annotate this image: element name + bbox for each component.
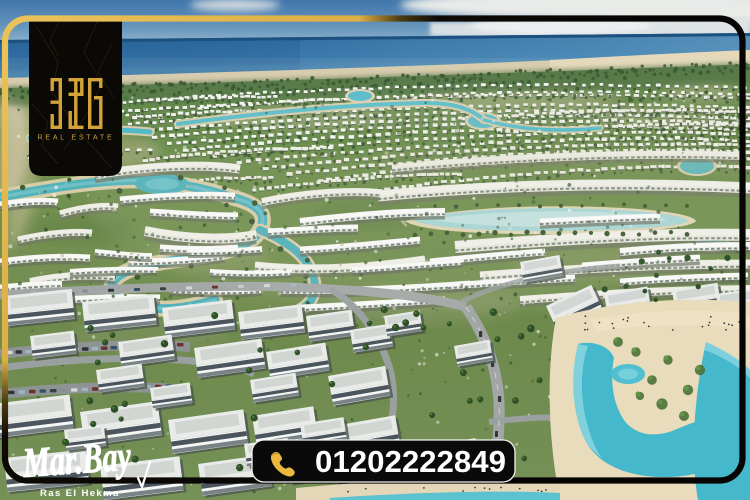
svg-text:REAL ESTATE: REAL ESTATE: [38, 135, 115, 142]
svg-text:Ras El Hekma: Ras El Hekma: [40, 488, 120, 499]
svg-text:Mar.Bay: Mar.Bay: [21, 434, 133, 487]
svg-text:01202222849: 01202222849: [315, 444, 506, 479]
